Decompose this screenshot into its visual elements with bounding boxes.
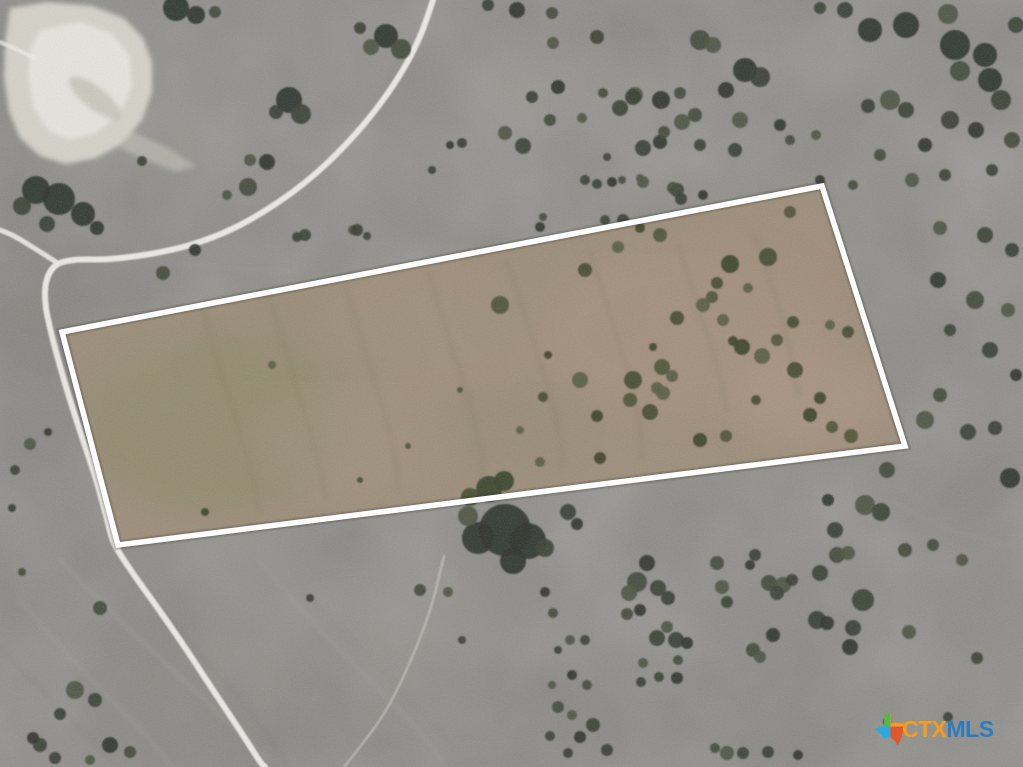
texas-icon-green-quadrant [874, 713, 891, 727]
watermark-mls-text: MLS [947, 710, 994, 748]
ctxmls-watermark: CTX MLS [874, 710, 994, 748]
texas-icon-blue-quadrant [874, 726, 891, 745]
watermark-wordmark: CTX MLS [902, 710, 994, 748]
aerial-photo-canvas [0, 0, 1023, 767]
watermark-ctx-text: CTX [902, 710, 947, 748]
aerial-photo: CTX MLS [0, 0, 1023, 767]
photo-grain [0, 0, 1023, 767]
